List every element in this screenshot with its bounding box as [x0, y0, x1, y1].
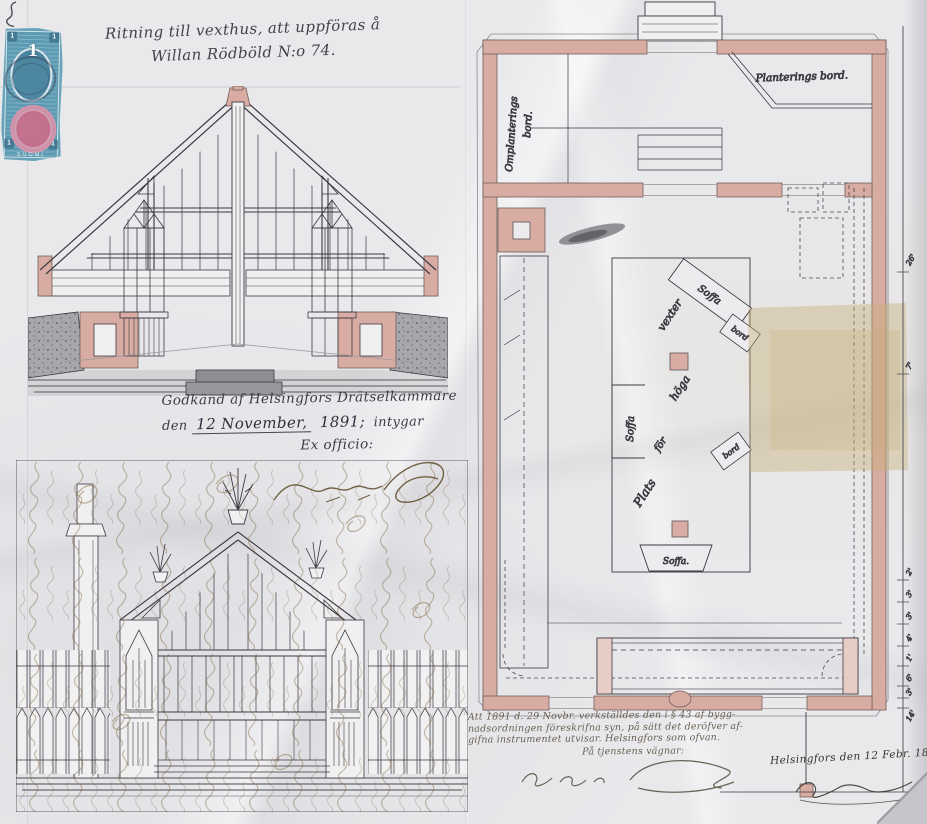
- repotting-table-label-2: bord.: [522, 111, 535, 138]
- approval-den: den: [162, 418, 188, 433]
- center-caption-word-plats: Plats: [630, 476, 659, 510]
- table-right-lower: bord: [711, 432, 751, 470]
- greenhouse-floor-plan-drawing: Planterings bord. Omplanterings bord.: [470, 0, 927, 800]
- stamp-corner-numeral: 1: [49, 32, 59, 42]
- scanned-drawing-sheet: 1 1 1 1 1 SUOMI Ritning till vexthus, at…: [0, 0, 927, 824]
- dimension-label: 1': [904, 653, 915, 663]
- center-post: [232, 102, 244, 346]
- sofa-bottom-label: Soffa.: [663, 557, 689, 567]
- approval-date: 12 November,: [192, 413, 311, 434]
- paper-corner-edge: [877, 772, 927, 824]
- sofa-left-label: Soffa: [625, 416, 637, 442]
- bottom-bench-frame: [547, 623, 858, 707]
- stove-pillar-lower: [672, 521, 688, 537]
- inspection-signatures-scribble: [512, 752, 782, 804]
- sofa-left: Soffa: [612, 385, 645, 458]
- approval-intygar: intygar: [374, 414, 424, 430]
- stone-foundation-right: [390, 312, 448, 378]
- planting-table-label: Planterings bord.: [754, 69, 848, 84]
- ink-bleedthrough-overlay: [16, 460, 468, 812]
- approval-line-2: den 12 November, 1891; intygar: [162, 410, 492, 434]
- stove-pillar-upper: [670, 353, 688, 370]
- vent-triangle-right: [322, 176, 338, 194]
- dimension-label: 2': [903, 567, 915, 578]
- approval-year: 1891;: [316, 412, 370, 431]
- sofa-bottom: Soffa.: [640, 545, 712, 571]
- approval-block: Godkänd af Helsingfors Drätselkammare de…: [161, 387, 492, 456]
- center-caption-word-vexter: vexter: [655, 296, 685, 333]
- center-caption-word-for: för: [652, 435, 670, 455]
- repotting-table-label-1: Omplanterings: [504, 96, 520, 172]
- side-bench-left: [500, 256, 548, 668]
- center-caption-word-hoga: höga: [667, 373, 693, 403]
- dimension-label: 3': [904, 589, 915, 599]
- dimension-label: 26': [903, 252, 917, 267]
- pencil-smudge: [557, 219, 626, 249]
- dimension-label: 3': [904, 687, 915, 697]
- paper-corner-mark: [0, 0, 26, 30]
- dimension-label: 4': [903, 633, 915, 644]
- title-line-2: Willan Rödböld N:o 74.: [78, 38, 408, 68]
- plan-chimney: [638, 2, 722, 40]
- drawing-title: Ritning till vexthus, att uppföras å Wil…: [77, 14, 408, 67]
- gate-and-fence-elevation-drawing: [16, 460, 468, 812]
- dimension-label: 3': [904, 611, 915, 621]
- plan-steps: [530, 128, 722, 170]
- stone-foundation-left: [28, 312, 84, 378]
- greenhouse-front-elevation-drawing: [28, 86, 448, 398]
- dimension-label: 14': [904, 708, 918, 723]
- stamp-corner-numeral: 1: [7, 31, 17, 41]
- vent-triangle-left: [138, 176, 154, 194]
- dimension-label: 6': [904, 673, 915, 683]
